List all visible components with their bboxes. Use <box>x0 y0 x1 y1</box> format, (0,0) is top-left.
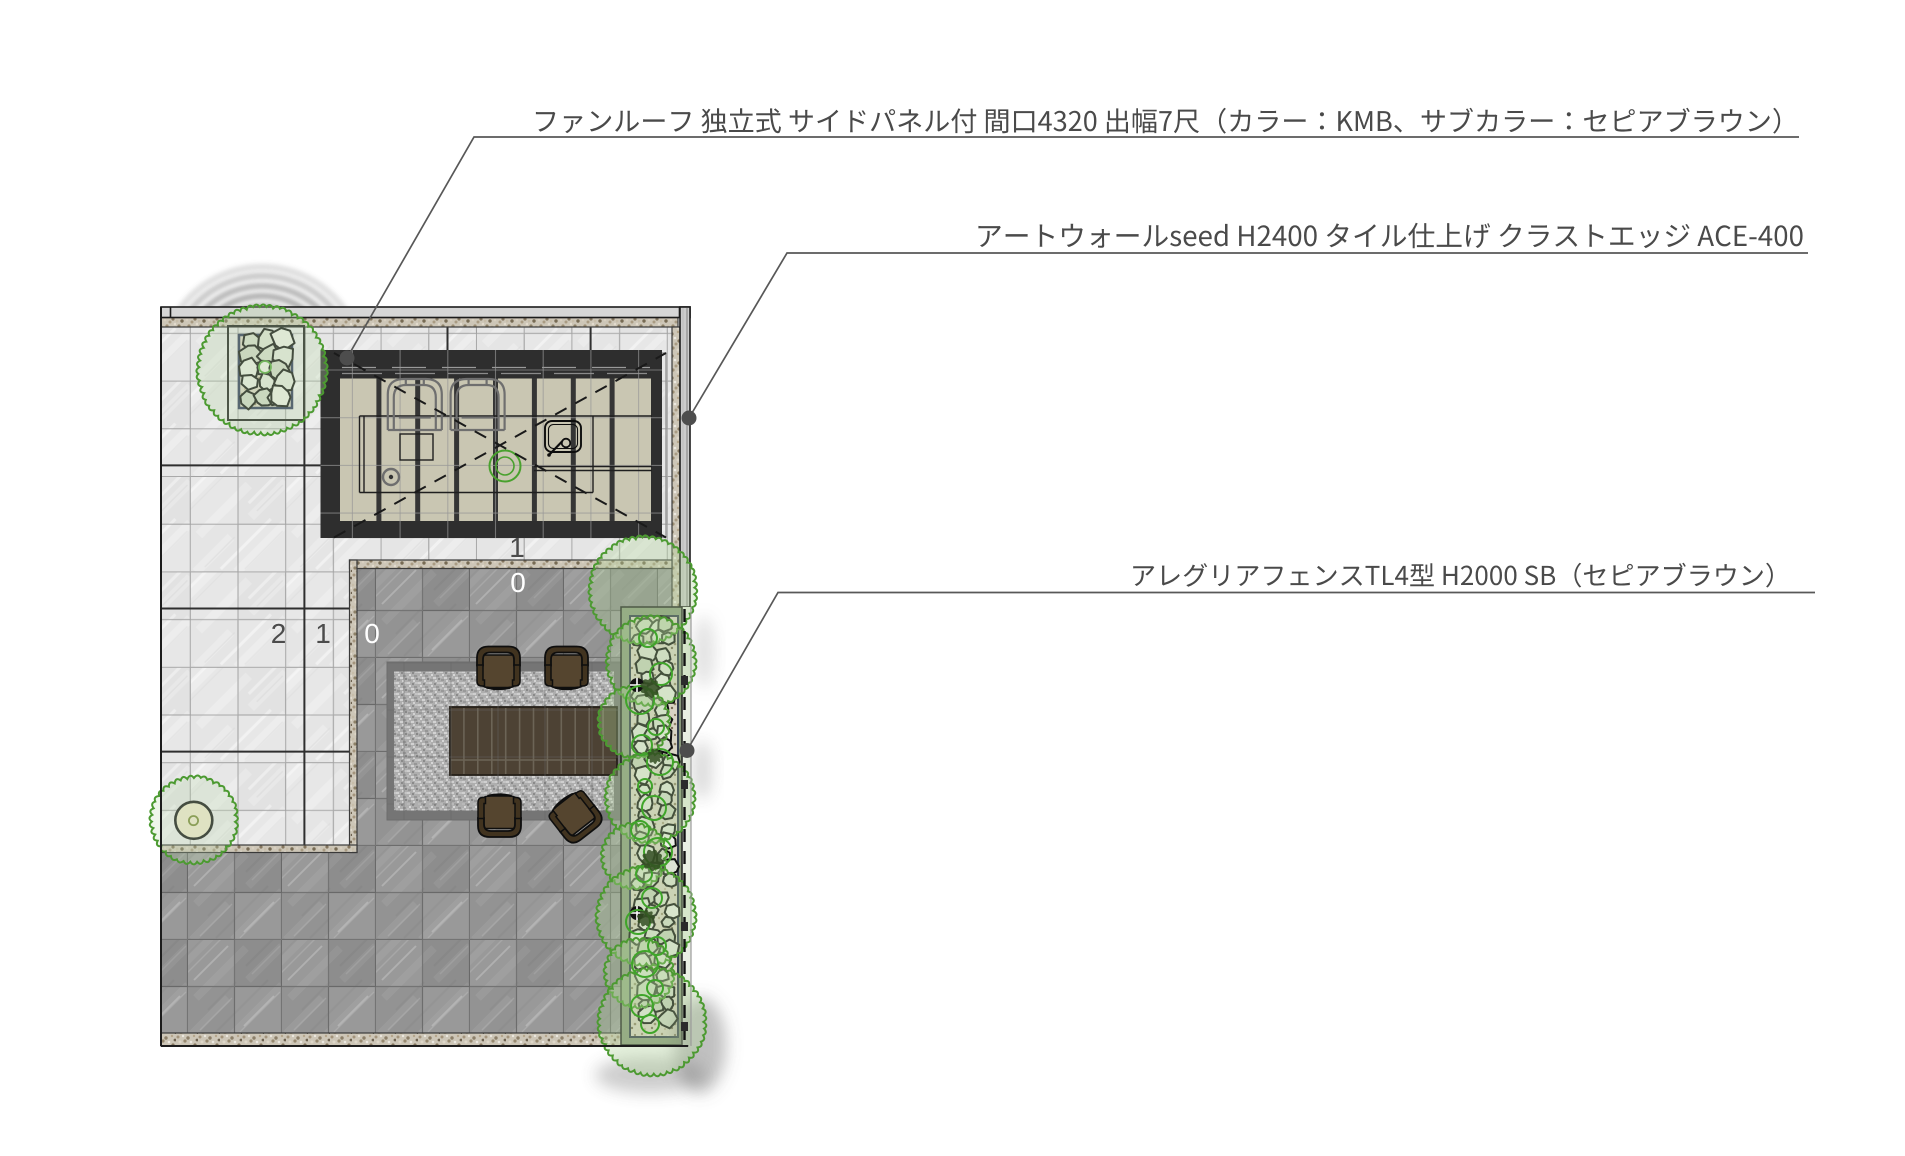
svg-text:0: 0 <box>510 567 526 598</box>
svg-text:0: 0 <box>364 618 380 649</box>
svg-text:1: 1 <box>509 532 525 563</box>
svg-text:1: 1 <box>315 618 331 649</box>
svg-text:2: 2 <box>271 618 287 649</box>
